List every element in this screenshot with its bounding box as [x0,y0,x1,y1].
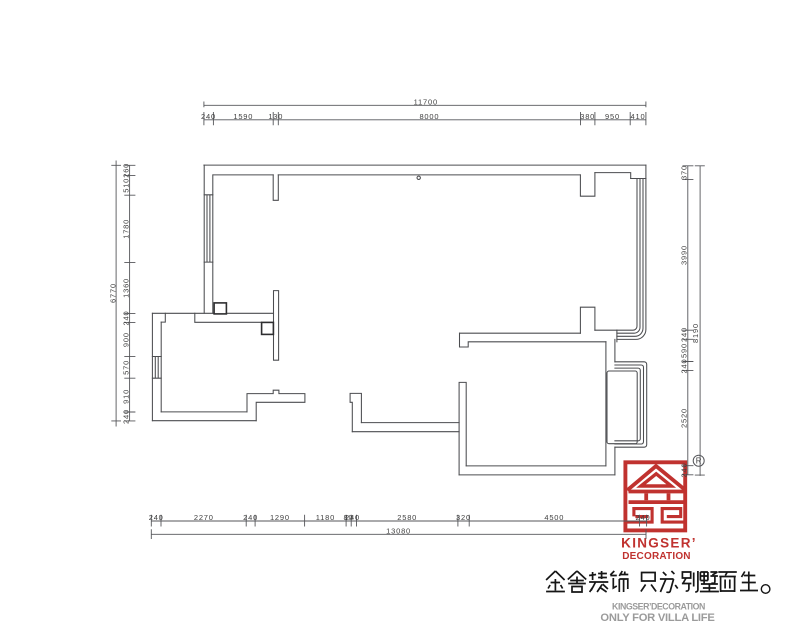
svg-text:2270: 2270 [194,513,214,522]
svg-text:260: 260 [122,163,131,178]
svg-text:1180: 1180 [316,513,335,522]
svg-text:1290: 1290 [270,513,290,522]
svg-text:240: 240 [680,359,689,374]
svg-text:370: 370 [680,165,689,180]
svg-text:DECORATION: DECORATION [622,551,690,562]
svg-text:240: 240 [122,409,131,424]
svg-text:KINGSER’DECORATION: KINGSER’DECORATION [612,602,705,612]
svg-text:1590: 1590 [233,112,253,121]
svg-text:510: 510 [122,178,131,193]
svg-text:1780: 1780 [122,219,131,239]
svg-text:910: 910 [122,389,131,404]
svg-text:570: 570 [122,360,131,375]
svg-text:240: 240 [149,513,164,522]
svg-text:8000: 8000 [419,112,439,121]
svg-text:2520: 2520 [680,408,689,428]
svg-text:590: 590 [680,343,689,358]
svg-text:410: 410 [631,112,646,121]
svg-text:240: 240 [680,327,689,342]
svg-text:950: 950 [605,112,620,121]
svg-text:900: 900 [122,332,131,347]
svg-text:240: 240 [345,513,360,522]
svg-text:ONLY FOR VILLA LIFE: ONLY FOR VILLA LIFE [600,612,715,624]
svg-text:320: 320 [456,513,471,522]
svg-text:KINGSER’: KINGSER’ [621,536,697,551]
svg-text:240: 240 [201,112,216,121]
svg-text:240: 240 [122,311,131,326]
svg-text:130: 130 [268,112,283,121]
svg-text:240: 240 [680,463,689,478]
svg-text:R: R [696,457,702,466]
svg-text:240: 240 [636,513,651,522]
svg-text:6770: 6770 [108,283,117,303]
svg-text:3990: 3990 [680,245,689,265]
svg-text:1360: 1360 [122,278,131,298]
svg-text:240: 240 [243,513,258,522]
svg-text:11700: 11700 [414,98,438,107]
svg-text:4500: 4500 [544,513,564,522]
svg-text:13080: 13080 [386,527,411,536]
svg-text:2580: 2580 [397,513,417,522]
svg-text:8190: 8190 [691,323,700,343]
svg-text:380: 380 [580,112,595,121]
